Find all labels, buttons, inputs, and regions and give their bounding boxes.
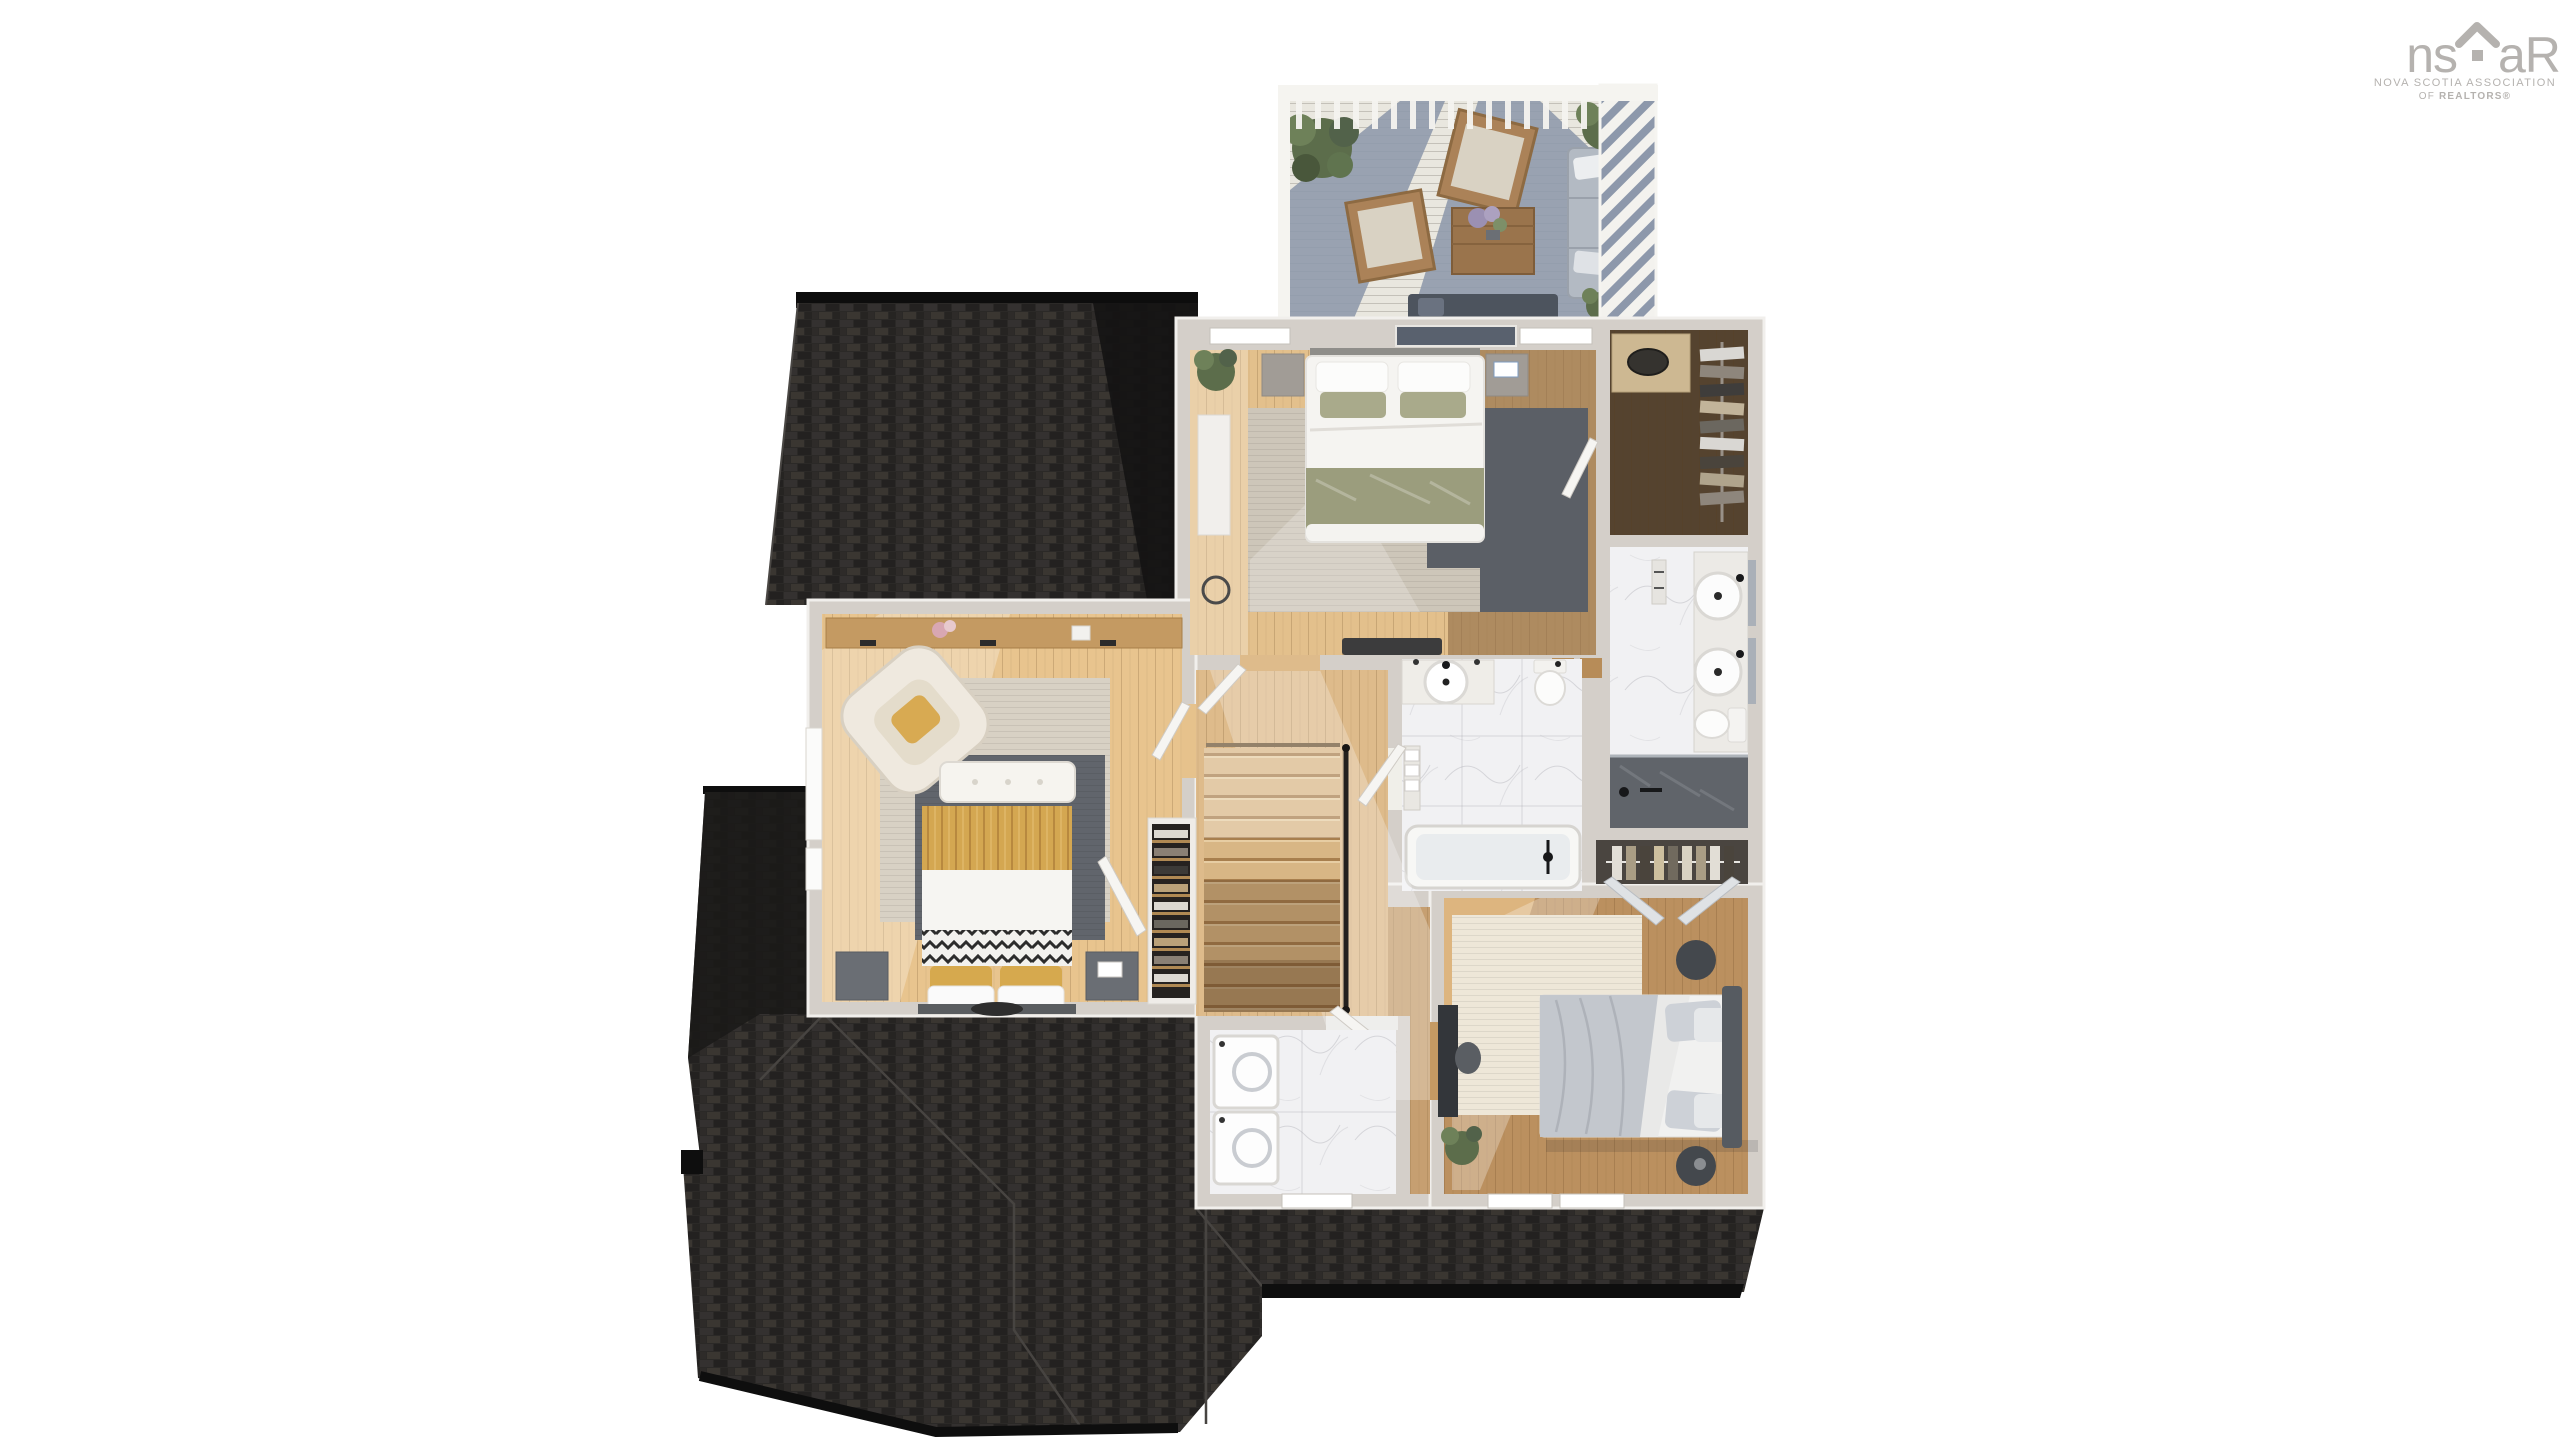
mustard-duvet [922,806,1072,872]
mirror [1748,560,1756,626]
headboard [1722,986,1742,1148]
roof-upper-left [766,292,1198,605]
sage-pillow [1400,392,1466,418]
house-roof-icon [2459,26,2496,61]
round-side-table [1676,940,1716,980]
sage-duvet [1306,468,1484,532]
sheet [922,870,1072,932]
basket [1628,349,1668,375]
window [1488,1194,1552,1208]
mirror [1748,638,1756,704]
wood-stool [1580,658,1602,678]
roof-eave-left [681,1150,703,1174]
primary-bedroom [1190,326,1602,678]
pergola-top-beam [1278,85,1658,101]
hanging-clothes [1612,846,1734,880]
floor-plan-render: ns aR NOVA SCOTIA ASSOCIATION OF REALTOR… [0,0,2560,1440]
closet-shelves [1152,830,1190,987]
window [806,848,822,890]
window [1282,1194,1352,1208]
window [1560,1194,1624,1208]
ensuite-shower [1610,756,1748,828]
console-shelf [826,618,1182,648]
laundry-room [1210,1030,1396,1208]
floor-plan-svg: ns aR NOVA SCOTIA ASSOCIATION OF REALTOR… [0,0,2560,1440]
window [1520,328,1592,344]
bath-vanity [1402,659,1494,704]
right-bed [1540,986,1758,1152]
dryer [1214,1112,1278,1184]
deck-plant [1284,114,1359,182]
bath-toilet [1534,660,1566,705]
chevron-throw [922,930,1072,966]
primary-bed [1306,348,1484,542]
primary-dresser [1198,415,1230,535]
nightstand [1262,354,1304,396]
decor [1072,626,1090,640]
roof-deck [1278,85,1658,325]
bed-bench [1342,638,1442,655]
pillow [1316,362,1388,392]
bathtub [1406,826,1580,888]
faucet [1736,650,1744,658]
logo-text-left: ns [2406,27,2457,83]
deck-lounge-chair [1346,190,1435,282]
round-mat [971,1002,1023,1016]
nightstand [836,952,888,1000]
ensuite-bathroom [1610,547,1756,828]
window [806,728,822,840]
book [1098,962,1122,977]
pergola-slat-band [1600,85,1656,325]
logo-text-right: aR [2498,27,2560,83]
desk-chair [1455,1042,1481,1074]
logo-tagline-line2: OF REALTORS® [2419,91,2512,102]
washer [1214,1036,1278,1108]
staircase [1204,744,1350,1014]
deck-coffee-table [1452,206,1534,274]
towel-rack [1652,560,1666,604]
sage-pillow [1320,392,1386,418]
glass-door-to-deck [1396,326,1516,346]
shower-fixture [1619,787,1629,797]
faucet [1736,574,1744,582]
left-bedroom [806,614,1196,1016]
book [1494,362,1518,377]
nsar-logo: ns aR NOVA SCOTIA ASSOCIATION OF REALTOR… [2374,26,2560,102]
gray-duvet [1540,995,1658,1137]
hanging-clothes [1700,346,1745,505]
main-bathroom [1402,659,1582,891]
pergola-left-beam [1278,85,1290,325]
pillow [1398,362,1470,392]
window [1210,328,1290,344]
towel-shelf [1404,746,1420,810]
faucet [1442,661,1450,669]
roof-eave-right [1262,1284,1744,1298]
logo-tagline-line1: NOVA SCOTIA ASSOCIATION [2374,77,2556,89]
